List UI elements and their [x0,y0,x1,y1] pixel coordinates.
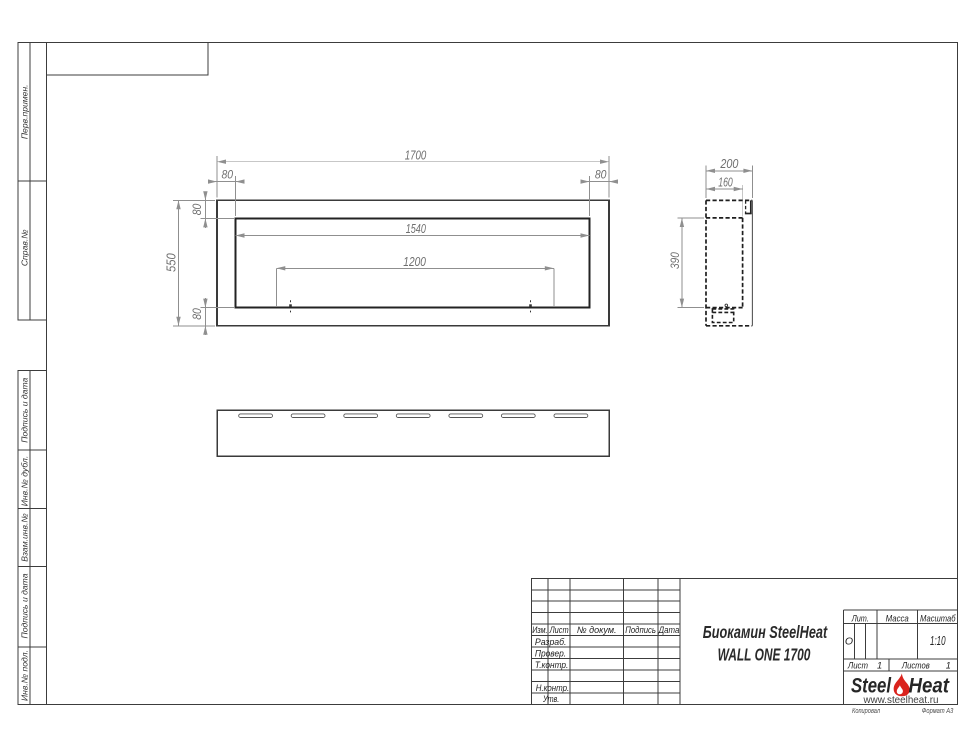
svg-text:Инв.№ подл.: Инв.№ подл. [20,650,30,701]
svg-text:Взам.инв.№: Взам.инв.№ [20,513,30,561]
svg-text:Инв.№ дубл.: Инв.№ дубл. [20,456,30,506]
svg-text:1: 1 [877,661,882,671]
svg-text:1: 1 [946,661,951,671]
svg-text:О: О [845,635,853,647]
svg-text:Подпись: Подпись [625,625,656,635]
svg-text:Утв.: Утв. [542,694,559,704]
svg-text:Копировал: Копировал [852,706,881,715]
svg-text:Масштаб: Масштаб [920,613,956,623]
svg-text:Н.контр.: Н.контр. [536,683,569,693]
svg-text:Формат А3: Формат А3 [922,706,954,715]
svg-text:www.steelheat.ru: www.steelheat.ru [863,694,939,706]
svg-text:200: 200 [720,157,739,171]
svg-text:Провер.: Провер. [535,648,566,658]
svg-text:80: 80 [190,203,204,215]
svg-text:Разраб.: Разраб. [535,637,567,647]
svg-text:Биокамин SteelHeat: Биокамин SteelHeat [703,622,828,642]
svg-text:Лит.: Лит. [851,613,869,623]
svg-text:Листов: Листов [901,661,930,671]
svg-text:390: 390 [668,252,682,269]
svg-text:Справ.№: Справ.№ [20,229,30,266]
svg-text:Подпись и дата: Подпись и дата [20,377,30,442]
svg-text:Перв.примен.: Перв.примен. [20,84,30,139]
svg-text:550: 550 [163,253,178,272]
svg-text:Изм.: Изм. [532,625,547,635]
svg-text:1200: 1200 [403,254,426,269]
svg-text:Лист: Лист [549,625,569,635]
svg-text:№ докум.: № докум. [577,625,617,635]
svg-text:1:10: 1:10 [930,633,946,648]
svg-text:Т.контр.: Т.контр. [535,660,568,670]
svg-text:80: 80 [190,308,204,320]
svg-text:80: 80 [595,168,607,182]
svg-text:1540: 1540 [406,221,427,236]
svg-text:Подпись и дата: Подпись и дата [20,573,30,638]
svg-text:Масса: Масса [886,613,909,623]
svg-text:1700: 1700 [405,147,427,162]
svg-text:Лист: Лист [847,661,868,671]
svg-text:WALL ONE 1700: WALL ONE 1700 [718,644,811,664]
svg-text:160: 160 [718,175,733,189]
svg-text:Дата: Дата [658,625,680,635]
svg-text:80: 80 [222,168,234,182]
